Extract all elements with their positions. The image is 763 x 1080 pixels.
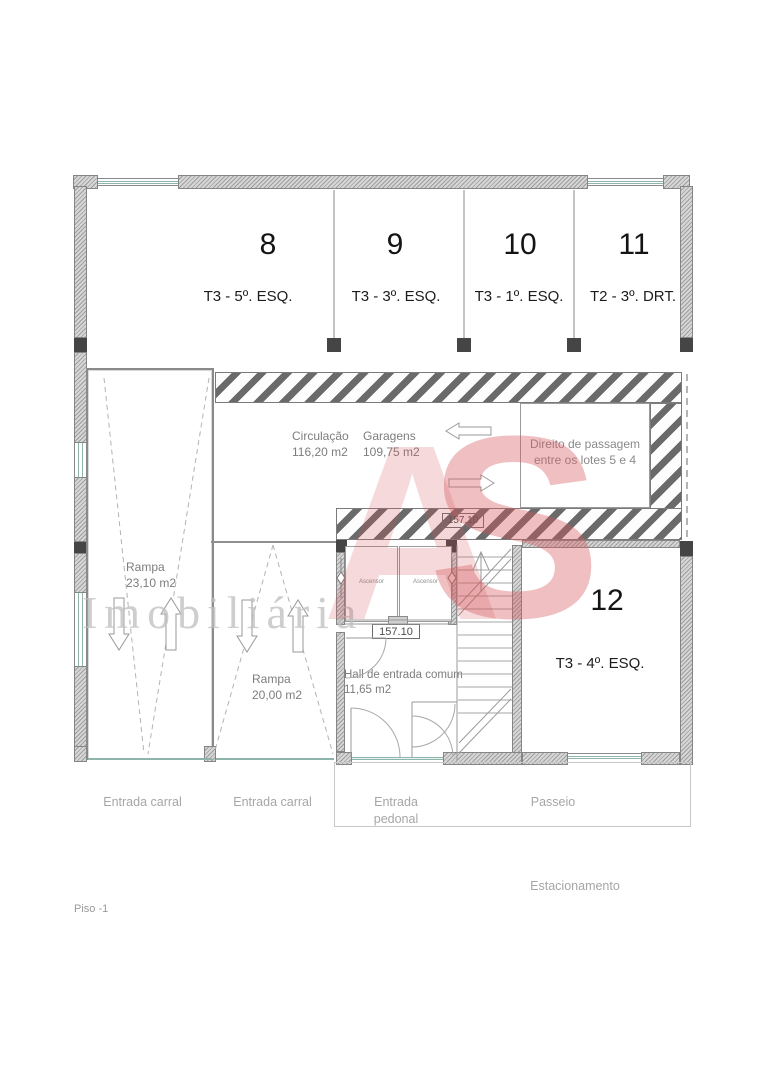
pillar-divider-3: [567, 338, 581, 352]
elevator-shaft-right: Ascensor: [399, 546, 452, 622]
wall-lift-left: [336, 552, 345, 625]
ramp-left-name: Rampa: [126, 560, 206, 576]
wall-top-main: [178, 175, 588, 189]
divider-space-10-11: [573, 190, 575, 350]
circulacao-label: Circulação 116,20 m2: [292, 429, 349, 461]
ramp-left-area: 23,10 m2: [126, 576, 206, 592]
elevator-right-label: Ascensor: [400, 579, 451, 585]
level-mark-upper: 157.10: [442, 513, 484, 528]
pillar-left-1: [74, 338, 87, 352]
entrance-door-glazing: [352, 757, 443, 760]
floor-plan-piso-1: 8 T3 - 5º. ESQ. 9 T3 - 3º. ESQ. 10 T3 - …: [0, 0, 763, 1080]
pillar-divider-1: [327, 338, 341, 352]
space-12-type: T3 - 4º. ESQ.: [540, 655, 660, 672]
right-of-way-note: Direito de passagem entre os lotes 5 e 4: [520, 403, 650, 508]
space-10-number: 10: [490, 228, 550, 262]
label-entrada-carral-1: Entrada carral: [95, 794, 190, 811]
garagens-label: Garagens 109,75 m2: [363, 429, 420, 461]
circulacao-area: 116,20 m2: [292, 445, 349, 461]
level-mark-lower: 157.10: [372, 624, 420, 639]
label-estacionamento: Estacionamento: [515, 878, 635, 895]
window-space12-bottom: [568, 753, 641, 760]
ramp-centre-area: 20,00 m2: [252, 688, 332, 704]
pillar-ramp-mid-end: [204, 746, 216, 762]
pillar-right-1: [680, 338, 693, 352]
strip-bottom-right-of-way: [336, 508, 682, 540]
window-top-left: [98, 178, 178, 186]
elevator-left-label: Ascensor: [346, 579, 397, 585]
space-8-type: T3 - 5º. ESQ.: [188, 288, 308, 305]
label-passeio: Passeio: [508, 794, 598, 811]
divider-space-9-10: [463, 190, 465, 350]
arrow-left-icon: [446, 423, 491, 439]
elevator-shaft-left: Ascensor: [345, 546, 398, 622]
strip-top-right-of-way: [215, 372, 682, 403]
ramp-centre-name: Rampa: [252, 672, 332, 688]
wall-left-upper: [74, 186, 87, 338]
ramp-centre-down-arrow-icon: [237, 600, 257, 652]
ramp-centre-label: Rampa 20,00 m2: [252, 672, 332, 704]
pillar-divider-2: [457, 338, 471, 352]
label-entrada-pedonal: Entrada pedonal: [369, 794, 423, 828]
wall-right-upper: [680, 186, 693, 338]
ramp-centre-up-arrow-icon: [288, 600, 308, 652]
hall-name: Hall de entrada comum: [344, 668, 464, 683]
pillar-ramp-left-end: [74, 746, 87, 762]
divider-space-8-9: [333, 190, 335, 350]
space-9-type: T3 - 3º. ESQ.: [336, 288, 456, 305]
hall-area: 11,65 m2: [344, 683, 464, 698]
garagens-area: 109,75 m2: [363, 445, 420, 461]
circulacao-name: Circulação: [292, 429, 349, 445]
pillar-right-2: [680, 541, 693, 556]
space-10-type: T3 - 1º. ESQ.: [459, 288, 579, 305]
wall-space12-top: [522, 540, 680, 548]
wall-stairs-right: [512, 545, 522, 760]
floor-title: Piso -1: [74, 902, 154, 917]
arrow-right-icon: [449, 475, 494, 491]
space-11-number: 11: [604, 228, 664, 262]
space-8-number: 8: [238, 228, 298, 262]
window-top-right: [588, 178, 663, 186]
hall-label: Hall de entrada comum 11,65 m2: [344, 668, 464, 698]
right-of-way-line2: entre os lotes 5 e 4: [521, 452, 649, 468]
wall-right-lower: [680, 556, 693, 765]
garagens-name: Garagens: [363, 429, 420, 445]
label-entrada-carral-2: Entrada carral: [225, 794, 320, 811]
space-11-type: T2 - 3º. DRT.: [573, 288, 693, 305]
space-12-number: 12: [577, 584, 637, 618]
ramp-left-label: Rampa 23,10 m2: [126, 560, 206, 592]
space-9-number: 9: [365, 228, 425, 262]
right-of-way-line1: Direito de passagem: [521, 436, 649, 452]
